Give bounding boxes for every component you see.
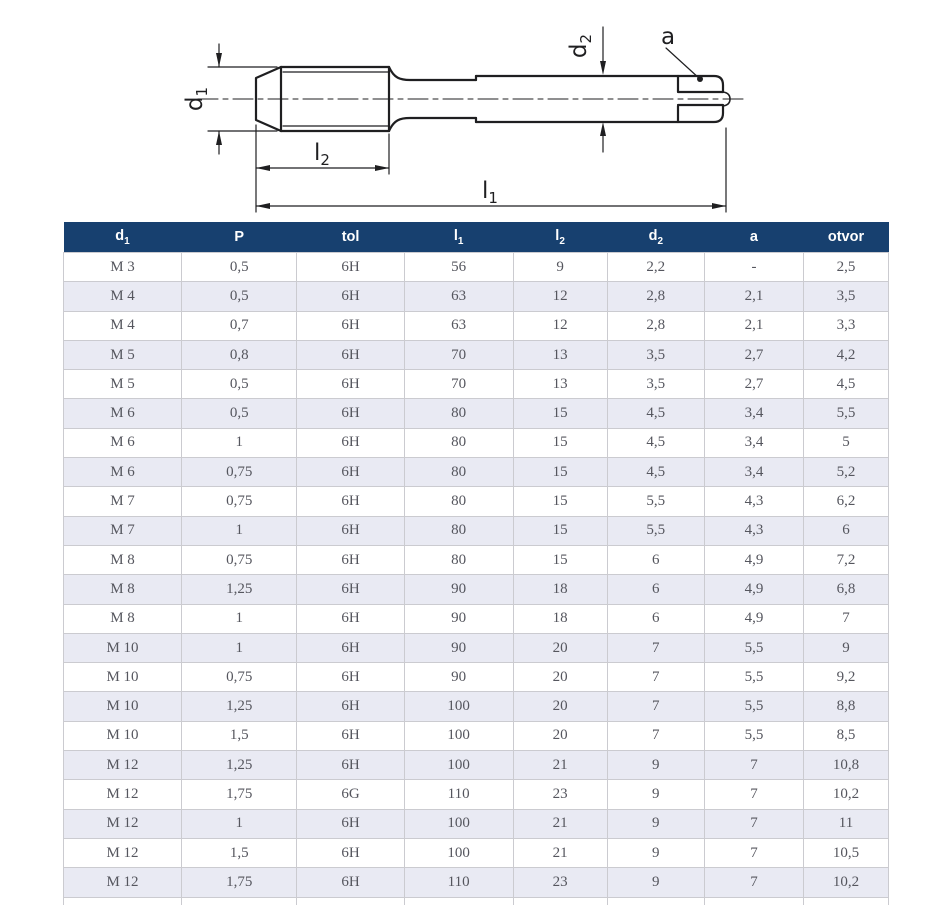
table-cell: 5,2 <box>803 458 888 487</box>
table-cell: 23 <box>513 780 607 809</box>
l1-arrow-right <box>712 203 726 209</box>
l1-arrow-left <box>256 203 270 209</box>
table-cell: 100 <box>404 751 513 780</box>
table-cell: M 10 <box>64 633 182 662</box>
table-cell: 0,5 <box>181 282 296 311</box>
column-header-subscript: 2 <box>657 235 663 246</box>
table-cell: 5,5 <box>704 721 803 750</box>
table-cell: 5 <box>803 428 888 457</box>
table-row: M 616H80154,53,45 <box>64 428 889 457</box>
table-cell: 7 <box>607 633 704 662</box>
table-cell: 110 <box>404 780 513 809</box>
table-cell: 0,5 <box>181 370 296 399</box>
table-row: M 121,56H100219710,5 <box>64 838 889 867</box>
table-cell: 15 <box>513 458 607 487</box>
table-cell: 80 <box>404 458 513 487</box>
column-header-d1: d1 <box>64 222 182 253</box>
table-cell: 0,75 <box>181 487 296 516</box>
column-header-label: otvor <box>828 229 864 245</box>
dim-label-l1: l1 <box>482 178 498 207</box>
table-cell: 9 <box>607 751 704 780</box>
table-cell: M 8 <box>64 545 182 574</box>
table-cell: 7,2 <box>803 545 888 574</box>
table-row: M 81,256H901864,96,8 <box>64 575 889 604</box>
table-cell: 2,7 <box>704 370 803 399</box>
page: d1 l2 l1 d2 a d1Ptoll1l2d2aotvor M 30,56… <box>0 0 943 905</box>
table-cell: M 12 <box>64 868 182 897</box>
table-cell: M 7 <box>64 487 182 516</box>
dim-label-l2: l2 <box>314 140 330 169</box>
table-cell <box>64 897 182 905</box>
table-cell: 3,5 <box>607 340 704 369</box>
table-cell: 3,4 <box>704 428 803 457</box>
table-cell: 100 <box>404 838 513 867</box>
column-header-a: a <box>704 222 803 253</box>
table-cell: 90 <box>404 604 513 633</box>
table-cell: 5,5 <box>607 487 704 516</box>
table-cell: 6H <box>297 751 404 780</box>
table-cell: 6H <box>297 838 404 867</box>
table-cell: 7 <box>607 663 704 692</box>
table-cell: 1,25 <box>181 692 296 721</box>
table-cell: M 4 <box>64 311 182 340</box>
tap-technical-drawing: d1 l2 l1 d2 a <box>0 0 943 222</box>
table-cell: 21 <box>513 838 607 867</box>
table-cell: 15 <box>513 399 607 428</box>
table-cell: 6H <box>297 721 404 750</box>
table-cell: 9 <box>803 633 888 662</box>
table-cell: M 12 <box>64 780 182 809</box>
table-cell: 4,9 <box>704 575 803 604</box>
table-cell: 6H <box>297 311 404 340</box>
table-cell: 80 <box>404 399 513 428</box>
dim-label-a: a <box>661 24 675 50</box>
table-cell: 9 <box>607 868 704 897</box>
table-row: M 70,756H80155,54,36,2 <box>64 487 889 516</box>
d1-arrow-bottom <box>216 131 222 145</box>
table-cell: 1,75 <box>181 780 296 809</box>
table-cell: 9 <box>513 253 607 282</box>
table-cell: 7 <box>704 868 803 897</box>
table-cell: 4,5 <box>607 428 704 457</box>
table-cell: 110 <box>404 868 513 897</box>
column-header-otvor: otvor <box>803 222 888 253</box>
dim-label-d2: d2 <box>566 34 595 58</box>
table-cell: 5,5 <box>704 633 803 662</box>
table-cell: 4,3 <box>704 487 803 516</box>
table-cell: 6 <box>607 575 704 604</box>
table-cell: 6H <box>297 399 404 428</box>
table-cell: 12 <box>513 282 607 311</box>
table-cell: 10,5 <box>803 838 888 867</box>
table-cell: 1 <box>181 516 296 545</box>
column-header-subscript: 1 <box>124 235 130 246</box>
table-cell: 4,5 <box>607 458 704 487</box>
table-cell: 1 <box>181 604 296 633</box>
table-row: M 60,756H80154,53,45,2 <box>64 458 889 487</box>
table-cell: 3,5 <box>803 282 888 311</box>
table-cell: 1,5 <box>181 721 296 750</box>
table-cell: 7 <box>704 751 803 780</box>
table-cell: 1,25 <box>181 751 296 780</box>
table-cell: 4,9 <box>704 545 803 574</box>
table-cell: - <box>704 253 803 282</box>
table-cell: 15 <box>513 428 607 457</box>
table-cell: 8,8 <box>803 692 888 721</box>
table-cell: 20 <box>513 721 607 750</box>
l2-arrow-left <box>256 165 270 171</box>
table-cell: 6H <box>297 604 404 633</box>
table-cell: 6,8 <box>803 575 888 604</box>
table-cell: M 4 <box>64 282 182 311</box>
table-cell: 63 <box>404 282 513 311</box>
table-cell: 100 <box>404 809 513 838</box>
table-cell: M 6 <box>64 399 182 428</box>
table-cell: 4,5 <box>607 399 704 428</box>
table-row: M 100,756H902075,59,2 <box>64 663 889 692</box>
table-cell: 11 <box>803 809 888 838</box>
table-cell: M 8 <box>64 604 182 633</box>
spec-table-container: d1Ptoll1l2d2aotvor M 30,56H5692,2-2,5M 4… <box>63 222 889 905</box>
table-row: M 40,56H63122,82,13,5 <box>64 282 889 311</box>
table-cell: 0,75 <box>181 458 296 487</box>
table-cell: M 12 <box>64 838 182 867</box>
table-row-clipped <box>64 897 889 905</box>
table-cell: 9,2 <box>803 663 888 692</box>
table-cell: 2,2 <box>607 253 704 282</box>
table-cell: 80 <box>404 428 513 457</box>
table-cell <box>704 897 803 905</box>
table-cell <box>181 897 296 905</box>
table-row: M 121,756H110239710,2 <box>64 868 889 897</box>
table-cell: 18 <box>513 604 607 633</box>
table-cell: 0,7 <box>181 311 296 340</box>
d2-arrow-bottom <box>600 122 606 136</box>
column-header-tol: tol <box>297 222 404 253</box>
table-cell: 7 <box>704 809 803 838</box>
table-cell: 6H <box>297 370 404 399</box>
table-cell: 4,9 <box>704 604 803 633</box>
table-cell: 20 <box>513 663 607 692</box>
table-cell <box>607 897 704 905</box>
table-cell: 9 <box>607 838 704 867</box>
table-row: M 30,56H5692,2-2,5 <box>64 253 889 282</box>
table-cell: M 5 <box>64 370 182 399</box>
table-cell: 1,75 <box>181 868 296 897</box>
table-cell: 3,4 <box>704 458 803 487</box>
table-cell: 80 <box>404 516 513 545</box>
table-cell: 6G <box>297 780 404 809</box>
table-cell: 4,3 <box>704 516 803 545</box>
table-cell: 2,8 <box>607 311 704 340</box>
table-row: M 80,756H801564,97,2 <box>64 545 889 574</box>
header-row: d1Ptoll1l2d2aotvor <box>64 222 889 253</box>
table-cell: 6H <box>297 809 404 838</box>
table-cell: 6 <box>803 516 888 545</box>
table-cell: 23 <box>513 868 607 897</box>
table-cell: M 5 <box>64 340 182 369</box>
table-cell: 6H <box>297 545 404 574</box>
table-header: d1Ptoll1l2d2aotvor <box>64 222 889 253</box>
table-cell: 0,75 <box>181 663 296 692</box>
table-cell <box>297 897 404 905</box>
column-header-P: P <box>181 222 296 253</box>
table-cell: 9 <box>607 809 704 838</box>
table-cell: M 6 <box>64 458 182 487</box>
table-cell: M 3 <box>64 253 182 282</box>
table-cell: 5,5 <box>704 692 803 721</box>
table-cell: 13 <box>513 370 607 399</box>
d2-arrow-top <box>600 61 606 75</box>
table-cell: M 8 <box>64 575 182 604</box>
a-leader-line <box>666 48 700 79</box>
table-cell <box>513 897 607 905</box>
table-cell: 6H <box>297 692 404 721</box>
table-cell: 3,5 <box>607 370 704 399</box>
table-cell: 70 <box>404 340 513 369</box>
table-cell: 0,8 <box>181 340 296 369</box>
table-cell: 7 <box>607 721 704 750</box>
table-cell: 6H <box>297 340 404 369</box>
table-cell: 70 <box>404 370 513 399</box>
table-cell: 21 <box>513 809 607 838</box>
table-cell: 15 <box>513 545 607 574</box>
dim-label-d1: d1 <box>182 87 211 111</box>
table-cell: M 12 <box>64 751 182 780</box>
table-cell: 80 <box>404 487 513 516</box>
table-cell: 15 <box>513 487 607 516</box>
table-cell: 1 <box>181 633 296 662</box>
table-cell: 6H <box>297 253 404 282</box>
column-header-d2: d2 <box>607 222 704 253</box>
table-cell: M 10 <box>64 663 182 692</box>
table-cell: 2,8 <box>607 282 704 311</box>
table-row: M 1216H100219711 <box>64 809 889 838</box>
table-cell: 20 <box>513 692 607 721</box>
table-cell: 12 <box>513 311 607 340</box>
table-cell: M 12 <box>64 809 182 838</box>
table-cell: 2,1 <box>704 311 803 340</box>
table-row: M 121,756G110239710,2 <box>64 780 889 809</box>
table-cell: 100 <box>404 721 513 750</box>
table-cell: 56 <box>404 253 513 282</box>
table-cell: 90 <box>404 663 513 692</box>
d1-arrow-top <box>216 53 222 67</box>
table-row: M 101,256H1002075,58,8 <box>64 692 889 721</box>
column-header-label: a <box>750 229 758 245</box>
column-header-label: tol <box>342 229 360 245</box>
table-cell: 6H <box>297 428 404 457</box>
table-cell: 6 <box>607 545 704 574</box>
table-row: M 716H80155,54,36 <box>64 516 889 545</box>
table-cell: 0,5 <box>181 253 296 282</box>
table-cell: 5,5 <box>803 399 888 428</box>
tap-spec-table: d1Ptoll1l2d2aotvor M 30,56H5692,2-2,5M 4… <box>63 222 889 905</box>
table-cell: 10,2 <box>803 780 888 809</box>
table-cell: 2,1 <box>704 282 803 311</box>
table-cell: 6,2 <box>803 487 888 516</box>
table-cell <box>404 897 513 905</box>
table-cell: 7 <box>704 780 803 809</box>
table-row: M 101,56H1002075,58,5 <box>64 721 889 750</box>
table-row: M 50,86H70133,52,74,2 <box>64 340 889 369</box>
table-cell: 2,5 <box>803 253 888 282</box>
column-header-label: P <box>234 229 244 245</box>
table-cell: 10,2 <box>803 868 888 897</box>
table-row: M 60,56H80154,53,45,5 <box>64 399 889 428</box>
table-cell: 6H <box>297 516 404 545</box>
column-header-l2: l2 <box>513 222 607 253</box>
column-header-label: d <box>115 228 124 244</box>
table-cell: M 10 <box>64 721 182 750</box>
table-cell: 2,7 <box>704 340 803 369</box>
table-cell: 13 <box>513 340 607 369</box>
table-cell: M 7 <box>64 516 182 545</box>
table-cell: 4,2 <box>803 340 888 369</box>
table-cell <box>803 897 888 905</box>
table-cell: 6H <box>297 663 404 692</box>
table-cell: 90 <box>404 633 513 662</box>
table-cell: 0,75 <box>181 545 296 574</box>
table-cell: 6H <box>297 868 404 897</box>
table-row: M 50,56H70133,52,74,5 <box>64 370 889 399</box>
table-cell: 4,5 <box>803 370 888 399</box>
table-cell: 10,8 <box>803 751 888 780</box>
table-cell: 100 <box>404 692 513 721</box>
table-cell: 6H <box>297 458 404 487</box>
table-cell: 20 <box>513 633 607 662</box>
table-row: M 121,256H100219710,8 <box>64 751 889 780</box>
table-cell: 6 <box>607 604 704 633</box>
l2-arrow-right <box>375 165 389 171</box>
table-body: M 30,56H5692,2-2,5M 40,56H63122,82,13,5M… <box>64 253 889 905</box>
table-cell: M 6 <box>64 428 182 457</box>
a-leader-dot <box>697 76 703 82</box>
table-cell: 80 <box>404 545 513 574</box>
table-cell: 7 <box>803 604 888 633</box>
column-header-subscript: 1 <box>458 235 464 246</box>
table-row: M 1016H902075,59 <box>64 633 889 662</box>
table-cell: M 10 <box>64 692 182 721</box>
table-cell: 90 <box>404 575 513 604</box>
table-cell: 9 <box>607 780 704 809</box>
table-cell: 6H <box>297 487 404 516</box>
table-cell: 3,4 <box>704 399 803 428</box>
table-cell: 1,25 <box>181 575 296 604</box>
table-cell: 1,5 <box>181 838 296 867</box>
table-cell: 7 <box>607 692 704 721</box>
table-cell: 7 <box>704 838 803 867</box>
table-cell: 8,5 <box>803 721 888 750</box>
table-cell: 18 <box>513 575 607 604</box>
table-cell: 1 <box>181 428 296 457</box>
column-header-subscript: 2 <box>559 235 565 246</box>
table-cell: 15 <box>513 516 607 545</box>
table-row: M 40,76H63122,82,13,3 <box>64 311 889 340</box>
table-cell: 6H <box>297 282 404 311</box>
table-cell: 3,3 <box>803 311 888 340</box>
table-cell: 5,5 <box>607 516 704 545</box>
table-cell: 6H <box>297 633 404 662</box>
table-cell: 0,5 <box>181 399 296 428</box>
table-cell: 6H <box>297 575 404 604</box>
table-cell: 5,5 <box>704 663 803 692</box>
table-row: M 816H901864,97 <box>64 604 889 633</box>
table-cell: 63 <box>404 311 513 340</box>
column-header-l1: l1 <box>404 222 513 253</box>
table-cell: 1 <box>181 809 296 838</box>
table-cell: 21 <box>513 751 607 780</box>
